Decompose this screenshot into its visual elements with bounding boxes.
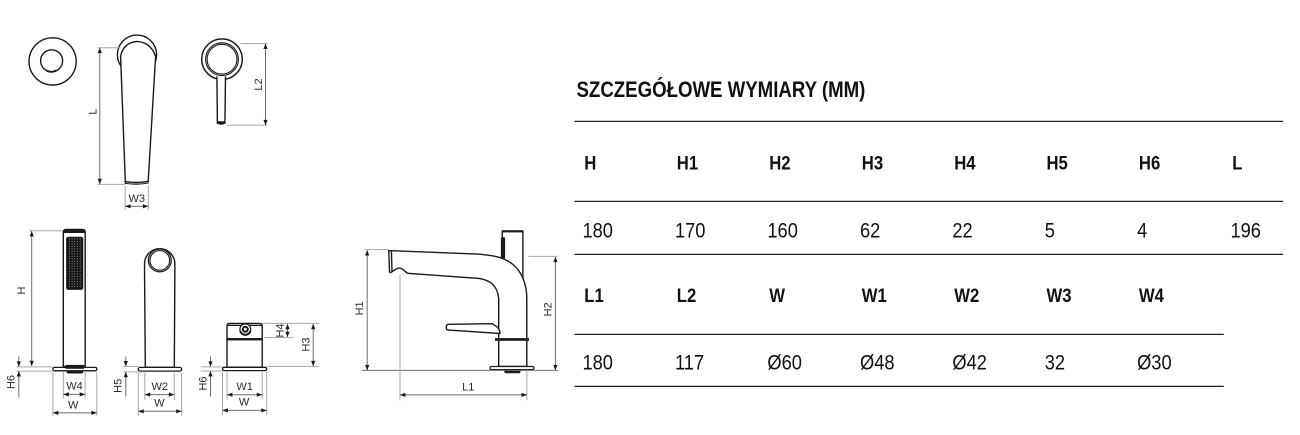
svg-text:H: H (16, 286, 28, 294)
svg-text:SZCZEGÓŁOWE WYMIARY (MM): SZCZEGÓŁOWE WYMIARY (MM) (577, 77, 866, 103)
svg-text:L1: L1 (462, 382, 474, 394)
svg-text:196: 196 (1231, 219, 1261, 243)
svg-text:H6: H6 (197, 376, 209, 390)
svg-text:4: 4 (1137, 219, 1147, 243)
svg-text:L: L (87, 108, 99, 114)
svg-text:62: 62 (860, 219, 880, 243)
svg-text:L1: L1 (584, 285, 604, 306)
svg-text:L2: L2 (677, 285, 697, 306)
svg-text:W4: W4 (1139, 285, 1164, 306)
svg-text:W3: W3 (129, 193, 146, 205)
svg-text:5: 5 (1045, 219, 1055, 243)
svg-text:H: H (584, 152, 596, 173)
svg-text:H2: H2 (769, 152, 790, 173)
svg-text:160: 160 (767, 219, 797, 243)
svg-text:W2: W2 (152, 381, 169, 393)
svg-text:W3: W3 (1047, 285, 1072, 306)
svg-text:W1: W1 (862, 285, 887, 306)
svg-text:W: W (68, 399, 79, 411)
svg-text:Ø30: Ø30 (1137, 351, 1172, 375)
svg-text:H4: H4 (954, 152, 975, 173)
svg-text:H3: H3 (862, 152, 883, 173)
svg-text:H6: H6 (6, 375, 18, 389)
svg-text:H6: H6 (1139, 152, 1160, 173)
svg-text:Ø60: Ø60 (767, 351, 802, 375)
svg-text:32: 32 (1045, 351, 1065, 375)
svg-text:W4: W4 (66, 381, 83, 393)
svg-text:22: 22 (952, 219, 972, 243)
svg-text:W: W (154, 398, 165, 410)
svg-text:180: 180 (583, 219, 613, 243)
svg-text:H1: H1 (677, 152, 698, 173)
svg-text:L2: L2 (253, 78, 265, 90)
svg-text:Ø42: Ø42 (952, 351, 987, 375)
svg-text:H1: H1 (354, 301, 366, 315)
svg-text:L: L (1232, 152, 1242, 173)
svg-text:W: W (239, 397, 250, 409)
svg-text:H2: H2 (542, 302, 554, 316)
svg-text:H3: H3 (300, 337, 312, 351)
svg-text:170: 170 (675, 219, 705, 243)
svg-text:117: 117 (675, 351, 704, 375)
svg-text:180: 180 (583, 351, 613, 375)
svg-text:H5: H5 (113, 379, 125, 393)
svg-text:H4: H4 (274, 323, 286, 337)
svg-text:Ø48: Ø48 (860, 351, 895, 375)
svg-text:W1: W1 (236, 381, 253, 393)
svg-text:H5: H5 (1047, 152, 1068, 173)
svg-text:W2: W2 (954, 285, 979, 306)
svg-text:W: W (769, 285, 785, 306)
